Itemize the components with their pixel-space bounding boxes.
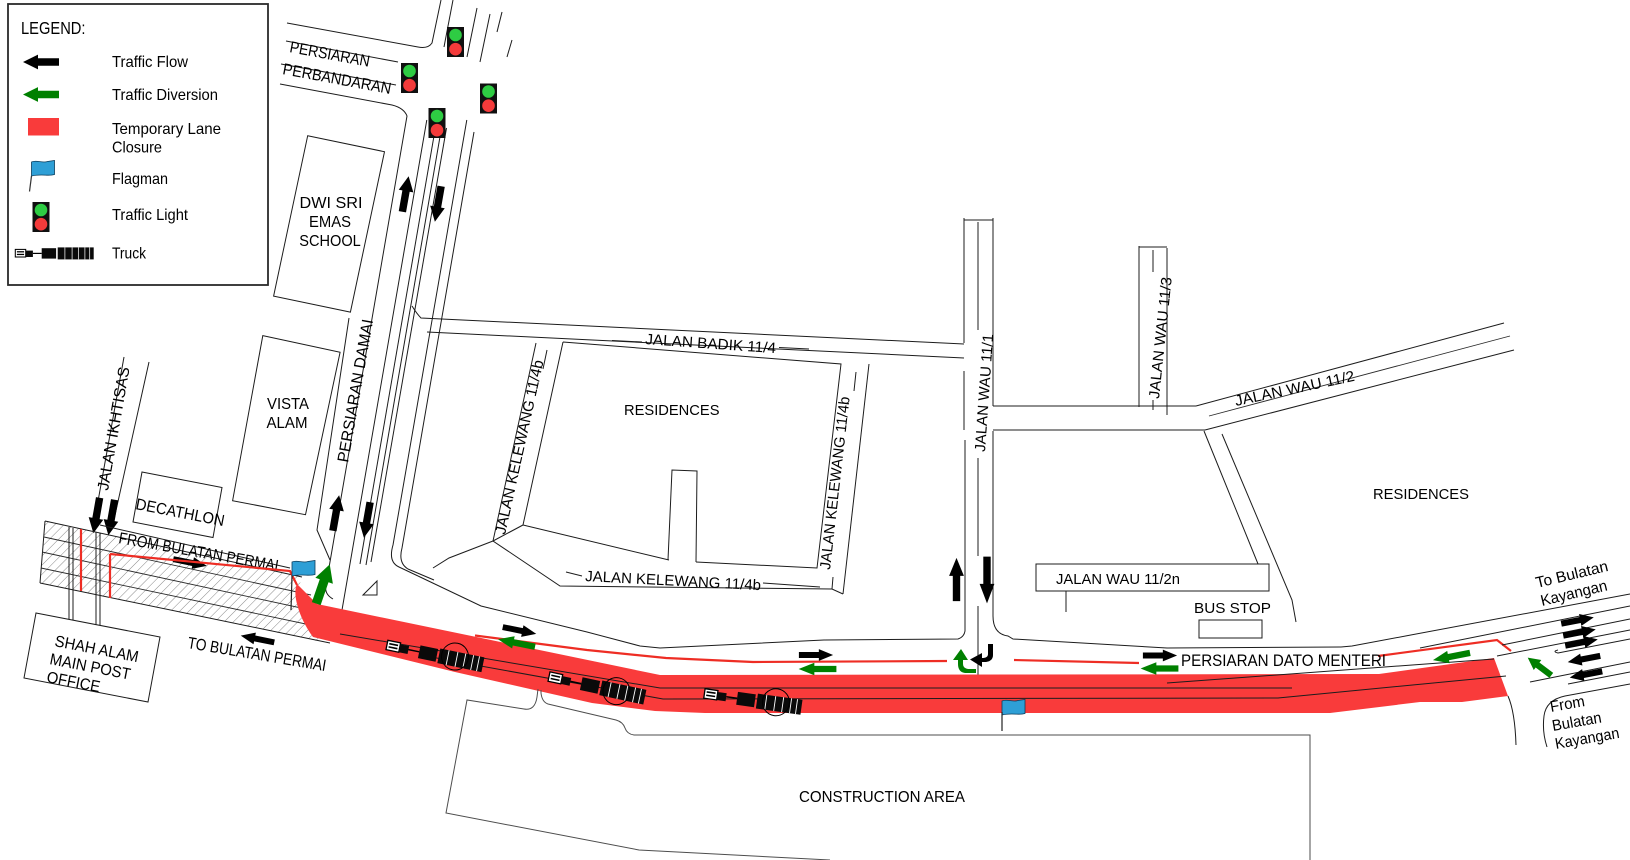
svg-text:ALAM: ALAM <box>267 415 308 432</box>
svg-text:RESIDENCES: RESIDENCES <box>624 402 720 419</box>
svg-text:CONSTRUCTION AREA: CONSTRUCTION AREA <box>799 789 965 806</box>
svg-text:RESIDENCES: RESIDENCES <box>1373 486 1469 503</box>
svg-text:Traffic Flow: Traffic Flow <box>112 54 188 71</box>
svg-text:Closure: Closure <box>112 140 162 157</box>
svg-text:LEGEND:: LEGEND: <box>21 18 86 38</box>
svg-text:Traffic Diversion: Traffic Diversion <box>112 87 218 104</box>
svg-text:JALAN WAU 11/2n: JALAN WAU 11/2n <box>1056 571 1180 588</box>
svg-text:Flagman: Flagman <box>112 171 168 188</box>
svg-text:Temporary Lane: Temporary Lane <box>112 121 221 138</box>
svg-text:PERSIARAN DATO MENTERI: PERSIARAN DATO MENTERI <box>1181 652 1386 670</box>
svg-text:VISTA: VISTA <box>267 396 309 413</box>
svg-text:SCHOOL: SCHOOL <box>299 233 361 250</box>
svg-text:Traffic Light: Traffic Light <box>112 207 189 224</box>
svg-text:DWI SRI: DWI SRI <box>300 195 363 212</box>
svg-text:EMAS: EMAS <box>309 214 351 231</box>
svg-text:BUS STOP: BUS STOP <box>1194 600 1271 617</box>
svg-text:Truck: Truck <box>112 246 147 263</box>
